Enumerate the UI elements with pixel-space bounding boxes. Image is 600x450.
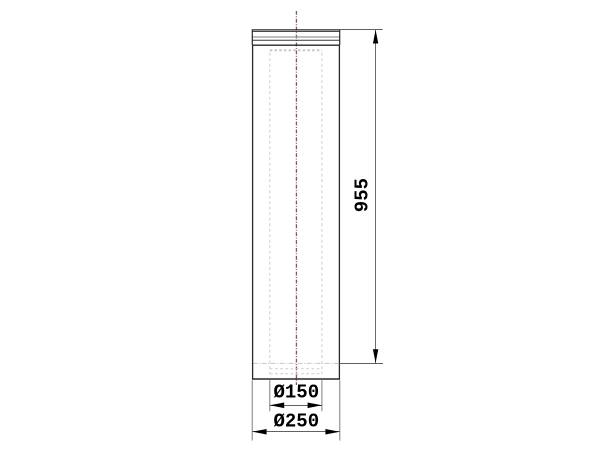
svg-text:Ø250: Ø250 bbox=[274, 411, 320, 433]
svg-text:955: 955 bbox=[352, 178, 374, 212]
svg-text:Ø150: Ø150 bbox=[274, 382, 320, 404]
